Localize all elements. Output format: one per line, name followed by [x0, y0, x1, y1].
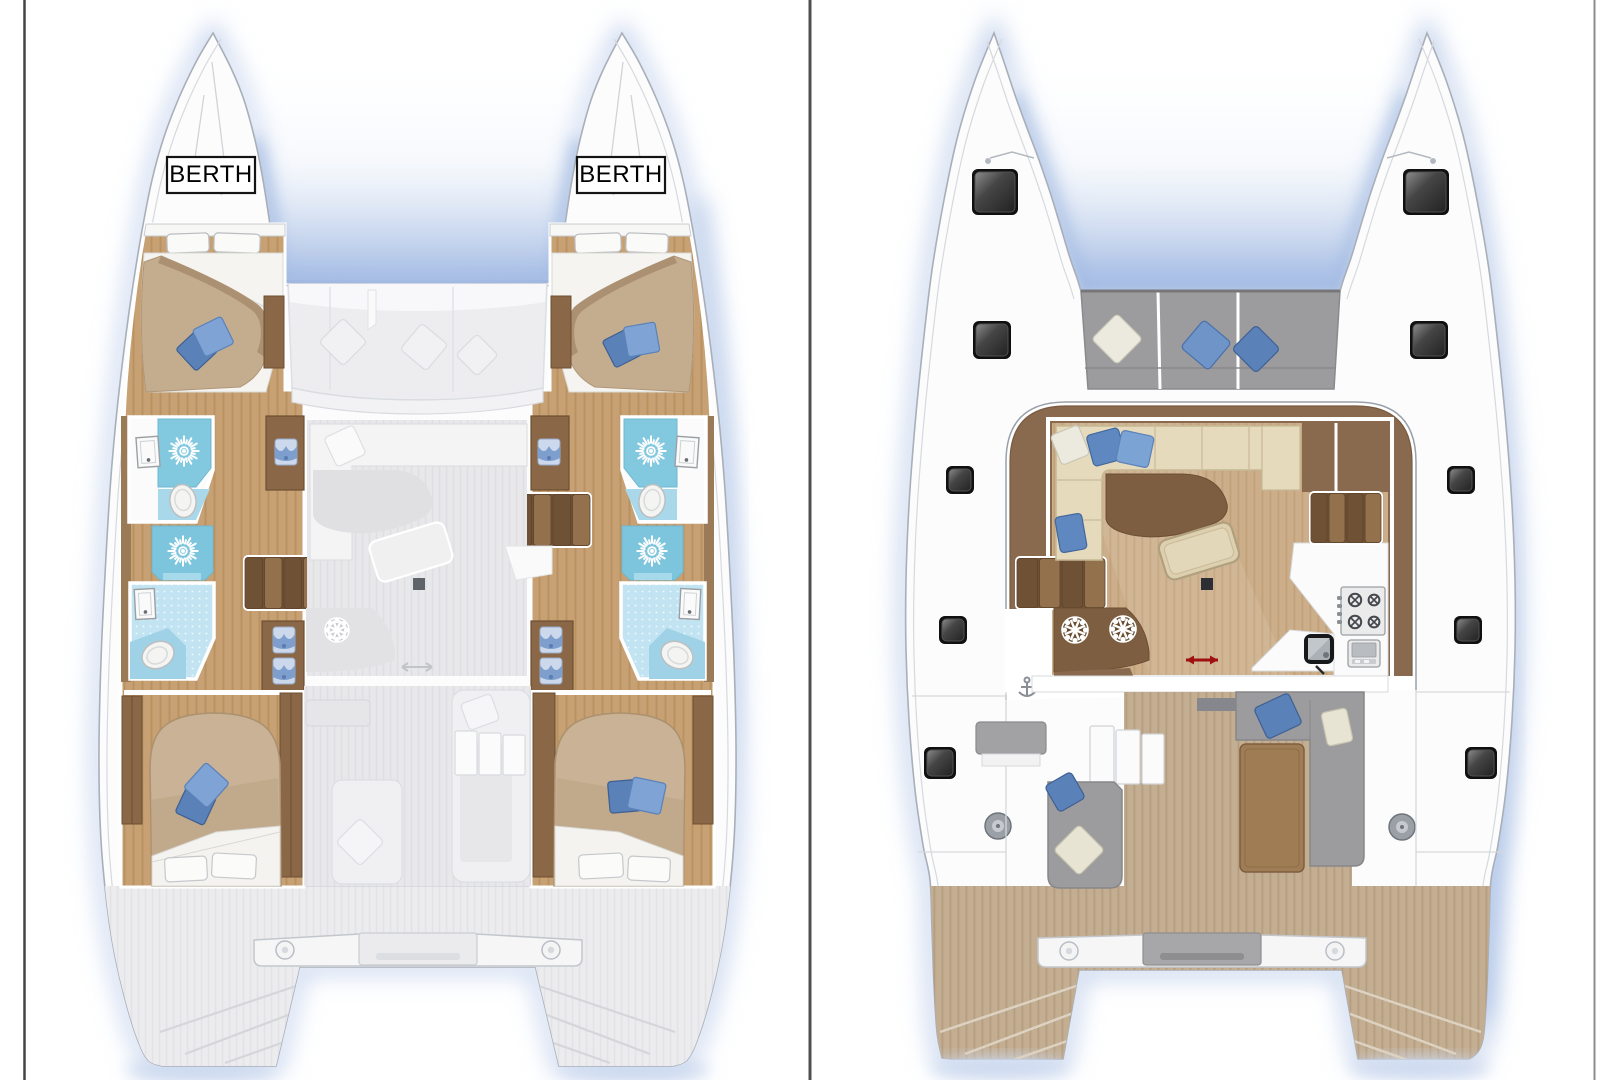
svg-text:BERTH: BERTH	[579, 161, 662, 188]
svg-text:BERTH: BERTH	[169, 161, 252, 188]
